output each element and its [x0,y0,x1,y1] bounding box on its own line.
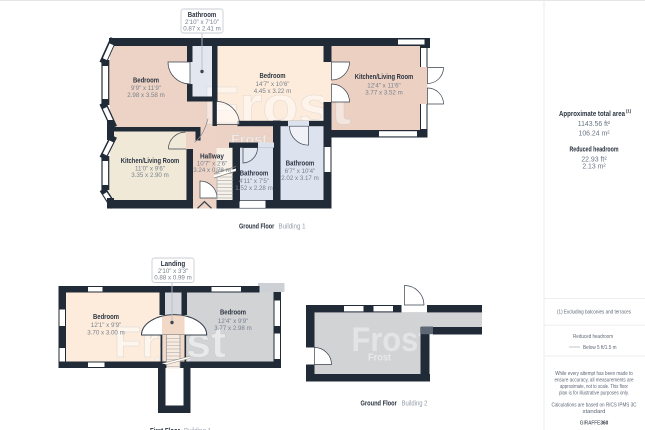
svg-text:3.24 x 0.78 m: 3.24 x 0.78 m [193,167,231,174]
svg-text:Reduced headroom: Reduced headroom [573,334,613,340]
svg-text:0.87 x 2.41 m: 0.87 x 2.41 m [183,26,221,33]
svg-text:Kitchen/Living Room: Kitchen/Living Room [355,74,414,81]
svg-text:Bedroom: Bedroom [220,310,246,317]
svg-text:Landing: Landing [161,261,186,268]
svg-text:Frost: Frost [368,353,392,364]
svg-text:0.88 x 0.99 m: 0.88 x 0.99 m [154,275,192,282]
svg-text:3.77 x 3.52 m: 3.77 x 3.52 m [365,90,403,97]
svg-text:106.24 m²: 106.24 m² [578,131,610,138]
svg-text:2.02 x 3.17 m: 2.02 x 3.17 m [281,175,319,182]
svg-text:2.13 m²: 2.13 m² [582,164,606,171]
svg-text:Bathroom: Bathroom [240,171,269,178]
svg-text:3.35 x 2.90 m: 3.35 x 2.90 m [131,172,169,179]
svg-text:plan is for illustrative purpo: plan is for illustrative purposes only. [559,391,629,397]
svg-text:Building 1: Building 1 [279,224,306,231]
svg-text:Building 2: Building 2 [402,401,428,408]
svg-text:6'7" x 10'4": 6'7" x 10'4" [285,168,316,175]
svg-text:While every attempt has been m: While every attempt has been made to [555,371,633,377]
svg-text:1143.56 ft²: 1143.56 ft² [578,121,611,128]
svg-text:22.93 ft²: 22.93 ft² [581,157,607,164]
svg-text:Ground Floor: Ground Floor [239,224,275,231]
svg-text:3.70 x 3.00 m: 3.70 x 3.00 m [87,330,125,337]
svg-text:Bedroom: Bedroom [133,78,159,85]
svg-text:Calculations are based on RICS: Calculations are based on RICS IPMS 3C [552,403,638,409]
svg-text:Kitchen/Living Room: Kitchen/Living Room [121,158,180,165]
svg-text:Bedroom: Bedroom [260,73,286,80]
svg-text:12'4" x 9'9": 12'4" x 9'9" [218,318,249,325]
svg-text:Approximate total area: Approximate total area [559,109,626,118]
svg-text:Ground Floor: Ground Floor [361,401,398,408]
svg-text:1.52 x 2.28 m: 1.52 x 2.28 m [235,185,273,192]
svg-text:Reduced headroom: Reduced headroom [570,147,619,154]
svg-text:ensure accuracy, all measureme: ensure accuracy, all measurements are [555,378,635,384]
svg-text:GIRAFFE360: GIRAFFE360 [580,421,609,427]
svg-text:2.98 x 3.58 m: 2.98 x 3.58 m [127,92,165,99]
svg-text:4'11" x 7'5": 4'11" x 7'5" [239,178,269,185]
svg-text:14'7" x 10'6": 14'7" x 10'6" [256,81,290,88]
svg-text:3.77 x 2.98 m: 3.77 x 2.98 m [214,325,252,332]
svg-text:12'4" x 11'6": 12'4" x 11'6" [367,83,400,90]
svg-text:4.45 x 3.22 m: 4.45 x 3.22 m [254,88,292,95]
svg-text:standard: standard [583,409,606,415]
svg-text:(1) Excluding balconies and te: (1) Excluding balconies and terraces [557,310,631,316]
svg-text:9'9" x 11'9": 9'9" x 11'9" [131,85,161,92]
svg-text:Hallway: Hallway [200,154,224,161]
svg-text:(1): (1) [626,109,632,114]
svg-text:12'1" x 9'9": 12'1" x 9'9" [91,322,122,329]
svg-text:Below 5 ft/1.5 m: Below 5 ft/1.5 m [583,345,617,351]
svg-text:Bedroom: Bedroom [93,314,119,321]
svg-text:Bathroom: Bathroom [188,12,217,19]
svg-text:approximate, not to scale. Thi: approximate, not to scale. This floor [560,384,628,390]
svg-text:Bathroom: Bathroom [286,161,315,168]
